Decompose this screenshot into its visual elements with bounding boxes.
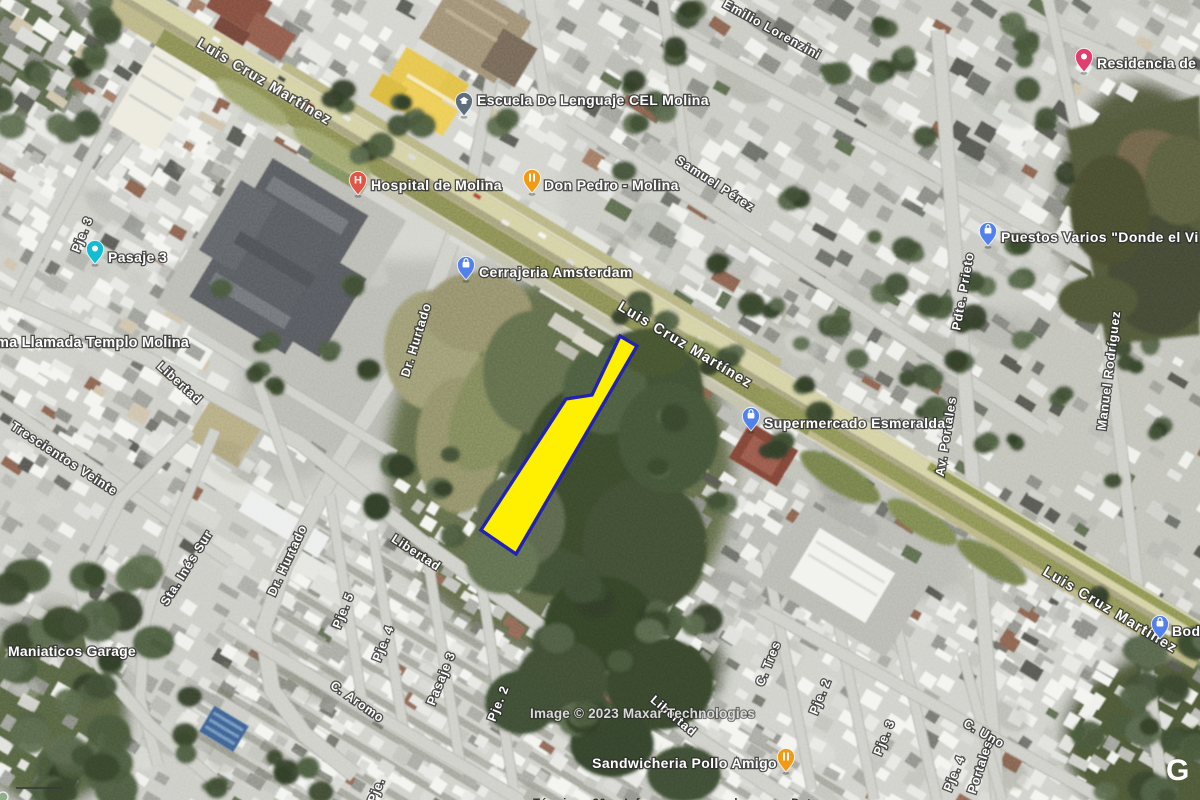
- svg-text:Puestos Varios "Donde el Vi: Puestos Varios "Donde el Vi: [1001, 229, 1199, 245]
- svg-text:Sandwicheria Pollo Amigo: Sandwicheria Pollo Amigo: [592, 755, 777, 771]
- svg-text:Don Pedro - Molina: Don Pedro - Molina: [544, 177, 679, 193]
- svg-text:Pasaje 3: Pasaje 3: [108, 249, 167, 265]
- svg-text:Escuela De Lenguaje CEL Molina: Escuela De Lenguaje CEL Molina: [477, 92, 709, 108]
- svg-text:G: G: [1166, 754, 1190, 787]
- svg-text:ma Llamada Templo Molina: ma Llamada Templo Molina: [0, 335, 190, 351]
- svg-text:Hospital de Molina: Hospital de Molina: [371, 177, 502, 193]
- svg-text:Maniaticos Garage: Maniaticos Garage: [8, 643, 136, 659]
- svg-text:Cerrajeria Amsterdam: Cerrajeria Amsterdam: [479, 264, 633, 280]
- svg-text:Supermercado Esmeralda: Supermercado Esmeralda: [764, 415, 946, 431]
- svg-text:Bodeg: Bodeg: [1172, 623, 1200, 639]
- svg-text:Image © 2023 Maxar Technologie: Image © 2023 Maxar Technologies: [530, 706, 755, 721]
- svg-text:H: H: [354, 175, 362, 187]
- svg-text:Residencia de: Residencia de: [1097, 55, 1196, 71]
